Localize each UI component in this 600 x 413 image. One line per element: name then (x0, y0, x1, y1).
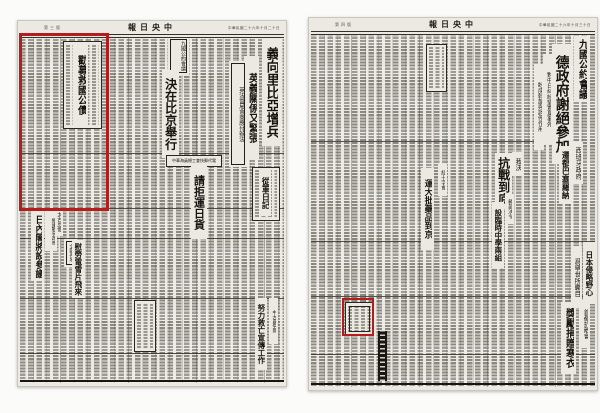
section-rule (311, 296, 595, 297)
masthead-date: 中華民國二十六年十月三十日 (539, 23, 591, 28)
section-rule (20, 298, 284, 299)
headline-schools: 設臨時中學兩組 (494, 204, 502, 266)
headline-spain-move: 遷都巴塞羅納 (561, 148, 569, 202)
page-number-label: 第四版 (335, 22, 353, 28)
headline-war-diary: 從軍日記 (261, 172, 269, 214)
masthead-rule (311, 31, 595, 35)
scanned-newspaper-spread: { "paper": { "name": "中央日報", "title_disp… (0, 0, 600, 413)
headline-world-watch: 爲舉世所矚目 (573, 248, 580, 306)
bottom-notice-box (134, 300, 156, 352)
masthead-date: 中華民國二十六年十月二十日 (228, 26, 280, 31)
war-diary-box: 從軍日記 (252, 167, 280, 221)
kicker-univ-team: 中大農學團 (271, 300, 276, 342)
section-rule (311, 354, 595, 355)
kicker-spain: 西班牙政府 (574, 144, 581, 182)
bottom-notice-smalltext (137, 303, 153, 349)
headline-winter-clothes: 獎勵捐贈寒衣 (563, 304, 574, 372)
newspaper-page-right: 第四版 報日央中 中華民國二十六年十月三十日 九國公約會議 德政府謝絕參加 對中… (308, 17, 598, 391)
section-rule (311, 141, 541, 142)
headline-medicine: 運大批藥品到京 (423, 170, 432, 248)
newspaper-title: 報日央中 (128, 24, 176, 32)
kicker-nine-power: 九國公約會議 (170, 39, 187, 73)
highlight-annotation-right[interactable] (342, 298, 374, 336)
page-number-label: 第三版 (44, 25, 62, 31)
kicker-capital: 首都抗敵會 (582, 302, 588, 346)
page-bottom-rule (20, 380, 284, 382)
inverted-title-strip (378, 331, 387, 381)
section-rule (20, 238, 284, 239)
kicker-resist: 我決 (514, 154, 521, 174)
kicker-moe: 敎部決令 (507, 196, 512, 222)
kicker-redcross: 紅十字會 (440, 166, 445, 194)
boxed-article (426, 44, 447, 92)
headline-italy-libya: 義向里比亞增兵 (264, 40, 278, 144)
section-rule (311, 241, 595, 242)
boxed-article-smalltext (429, 47, 444, 89)
headline-anglo-italian: 英義關係又緊張 (246, 58, 257, 158)
newspaper-title: 報日央中 (429, 21, 477, 29)
section-rule (20, 353, 284, 354)
headline-japan-ambition: 日本侵略野心 (585, 244, 593, 302)
headline-japan-cabinet: 日內閣將設參議 (33, 213, 42, 279)
headline-telegrams: 慰勞電雪片飛來 (74, 242, 82, 296)
subhead-mediation: 盼成斡旋與調停作用 (536, 66, 542, 148)
newspaper-page-left: 第三版 報日央中 中華民國二十六年十月二十日 勸募救國公債 九國公約會議 決在比… (17, 20, 287, 387)
headline-germany-declines: 德政府謝絕參加 (554, 46, 569, 162)
kicker-japan-cabinet: 擁護戰爭政策 (47, 213, 55, 249)
headline-refuse-cargo: 請拒運日貨 (193, 167, 205, 237)
subhead-stay-out: 對中日糾紛望置身事外 (545, 56, 551, 142)
kicker-nine-power: 九國公約會議 (576, 38, 587, 100)
headline-taikoo: 太古怠慢 (56, 210, 61, 234)
page-bottom-rule (311, 383, 595, 385)
headline-brussels: 決在比京舉行 (164, 72, 177, 156)
highlight-annotation-left[interactable] (19, 33, 109, 211)
headline-propaganda: 努力救亡宣傳工作 (257, 300, 265, 368)
seamen-union-text: 中華海員總工會快郵代電 (172, 158, 216, 164)
subhead-anglo-french: 英法當局會商應付辦法 (231, 63, 245, 165)
seamen-union-banner: 中華海員總工會快郵代電 (166, 155, 222, 167)
